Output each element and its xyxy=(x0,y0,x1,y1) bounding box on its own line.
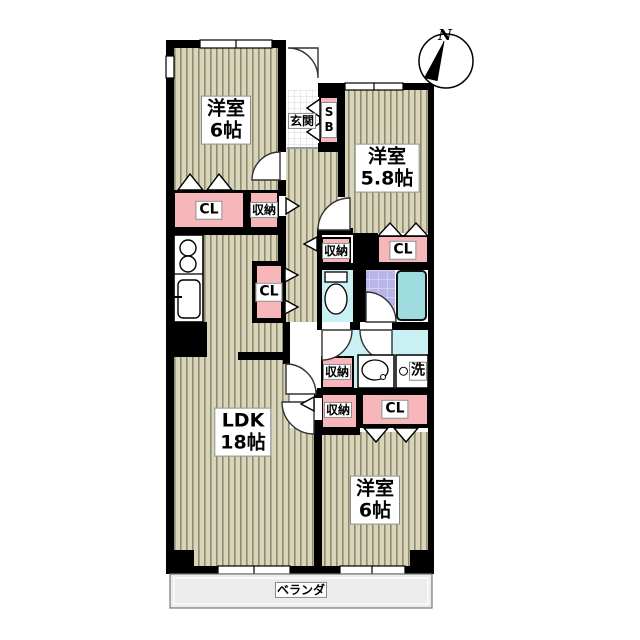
wall xyxy=(166,40,200,48)
wall xyxy=(350,322,360,330)
wall xyxy=(166,228,286,235)
wall xyxy=(272,40,286,48)
wall-corner xyxy=(410,550,434,574)
balcony-label: ベランダ xyxy=(275,582,327,598)
bathtub-icon xyxy=(397,271,426,320)
wall xyxy=(317,388,434,394)
storage-hall-lower-label: 収納 xyxy=(324,402,352,418)
storage-washroom-label: 収納 xyxy=(323,364,351,380)
room-label-bedroom-ne: 洋室 5.8帖 xyxy=(355,144,420,193)
wall-corner xyxy=(166,550,194,574)
wall xyxy=(314,428,360,435)
room-label-bedroom-nw: 洋室 6帖 xyxy=(201,96,251,145)
toilet-bowl-icon xyxy=(325,284,347,314)
wall xyxy=(238,352,286,360)
entrance-label: 玄関 xyxy=(288,113,316,129)
wall xyxy=(278,216,286,262)
storage-hall-upper-label: 収納 xyxy=(322,243,350,259)
wall xyxy=(403,83,434,90)
storage-nw-label: 収納 xyxy=(250,202,278,218)
closet-kitchen-label: CL xyxy=(255,283,282,302)
room-size: 5.8帖 xyxy=(361,168,414,190)
room-name: LDK xyxy=(220,410,265,432)
room-size: 6帖 xyxy=(356,500,394,522)
wall xyxy=(338,90,345,197)
closet-se-label: CL xyxy=(381,400,408,419)
wall xyxy=(290,566,340,574)
floorplan-page: 洋室 6帖 洋室 5.8帖 LDK 18帖 洋室 6帖 玄関 SB CL 収納 … xyxy=(0,0,640,640)
room-label-ldk: LDK 18帖 xyxy=(214,408,271,457)
wall xyxy=(314,420,322,566)
stove-burner-icon xyxy=(180,256,196,272)
room-size: 6帖 xyxy=(207,120,245,142)
wall xyxy=(357,394,362,428)
kitchen-sink-icon xyxy=(178,280,200,318)
washbasin-drain-icon xyxy=(381,375,386,380)
window xyxy=(166,56,174,78)
laundry-label: 洗 xyxy=(409,362,427,381)
wall xyxy=(428,90,434,574)
wall xyxy=(317,322,322,330)
room-name: 洋室 xyxy=(356,478,394,500)
wall xyxy=(353,233,378,265)
wall xyxy=(317,263,434,270)
door-arc-entrance xyxy=(288,48,318,78)
room-name: 洋室 xyxy=(361,146,414,168)
kitchen-pillar xyxy=(170,322,207,357)
room-size: 18帖 xyxy=(220,432,265,454)
entrance-step xyxy=(287,147,318,149)
stove-burner-icon xyxy=(180,240,196,256)
door-gap xyxy=(314,398,322,420)
compass-north-label: N xyxy=(438,27,452,45)
wall xyxy=(353,268,366,322)
laundry-label-group: 洗 xyxy=(399,362,427,381)
wall xyxy=(392,322,434,330)
faucet-icon xyxy=(399,366,408,375)
wall xyxy=(278,180,286,196)
closet-ne-label: CL xyxy=(389,241,416,260)
room-label-bedroom-se: 洋室 6帖 xyxy=(350,476,400,525)
floorplan-drawing xyxy=(0,0,640,640)
toilet-tank-icon xyxy=(325,272,347,282)
wall xyxy=(318,83,345,90)
closet-nw-label: CL xyxy=(195,201,222,220)
shoe-box-label: SB xyxy=(321,102,337,138)
wall xyxy=(278,48,286,152)
room-name: 洋室 xyxy=(207,98,245,120)
